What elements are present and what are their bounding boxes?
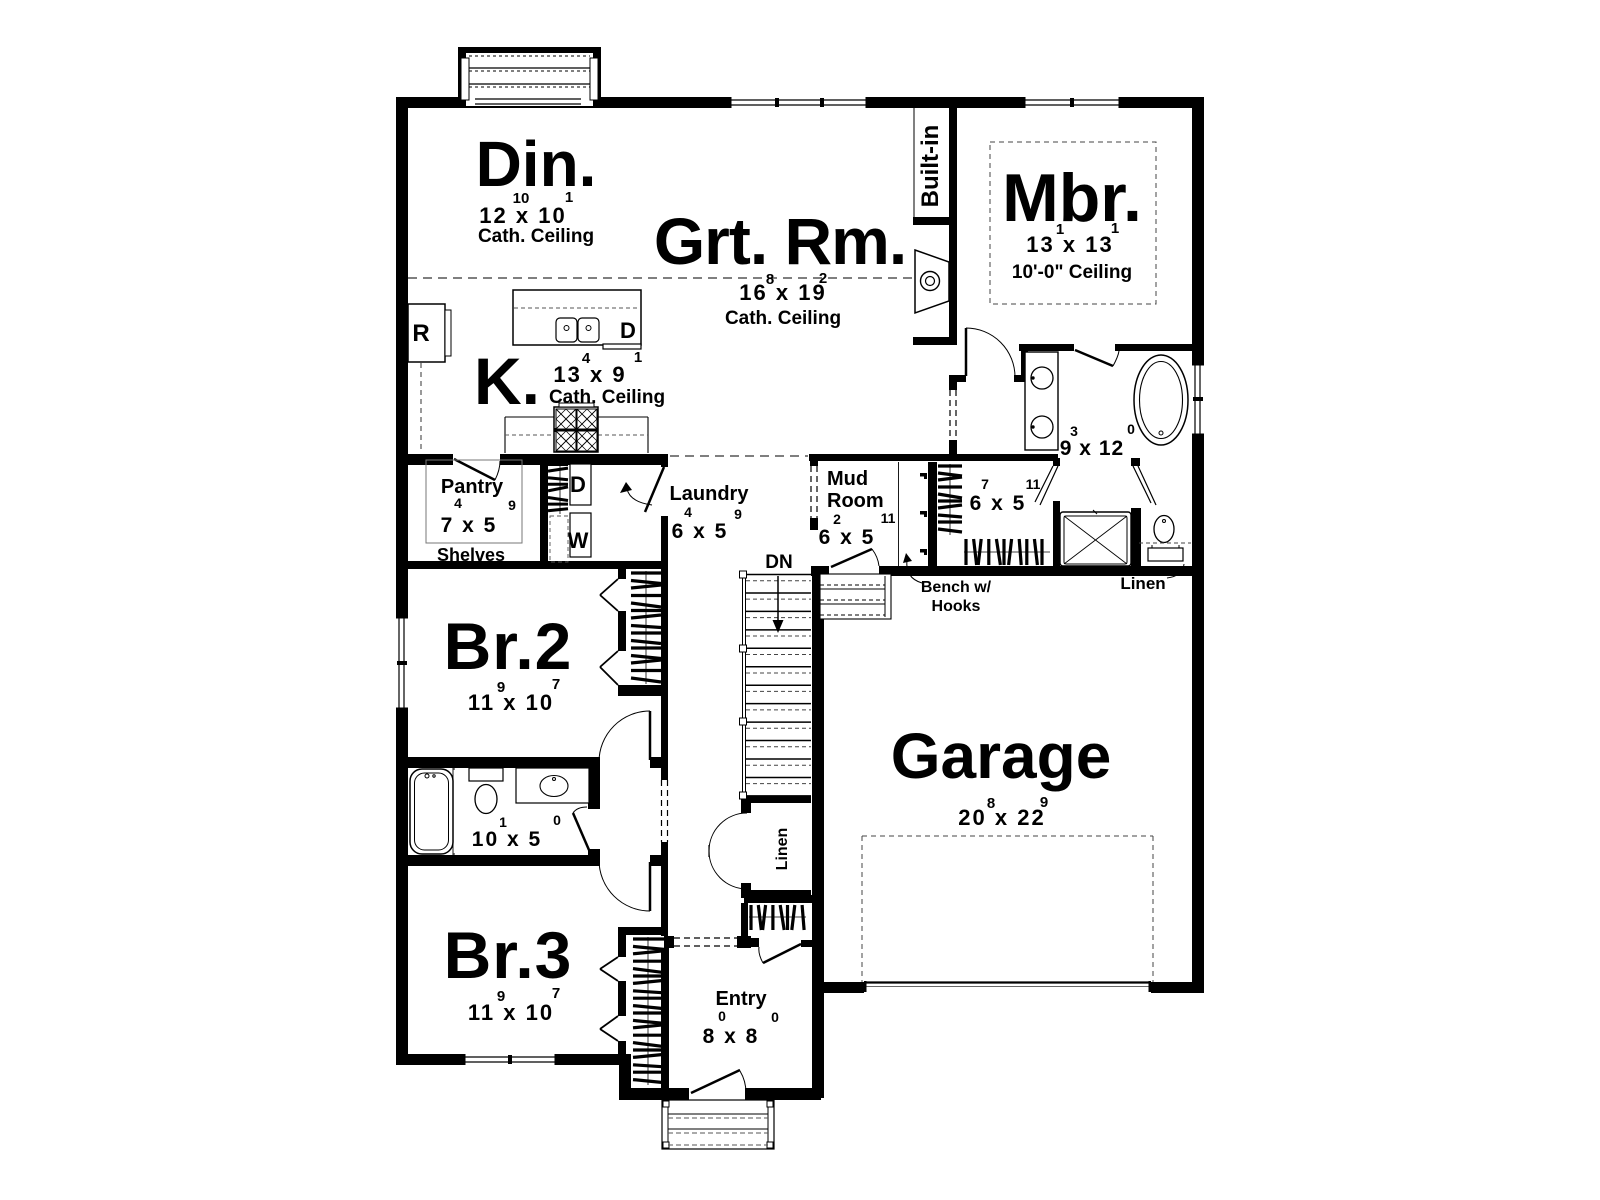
svg-text:6 x 5: 6 x 5 (819, 526, 876, 549)
svg-text:0: 0 (1127, 421, 1135, 437)
svg-text:20 x 22: 20 x 22 (958, 805, 1045, 830)
svg-text:8: 8 (766, 271, 774, 288)
svg-text:Grt. Rm.: Grt. Rm. (654, 204, 906, 278)
svg-text:9 x 12: 9 x 12 (1060, 437, 1124, 460)
svg-text:0: 0 (553, 812, 561, 828)
svg-text:0: 0 (718, 1008, 726, 1024)
svg-text:7: 7 (552, 676, 560, 693)
svg-text:D: D (620, 318, 636, 343)
svg-text:Br.2: Br.2 (444, 609, 573, 683)
svg-text:Garage: Garage (891, 720, 1112, 792)
svg-text:Pantry: Pantry (441, 476, 504, 498)
svg-text:Cath. Ceiling: Cath. Ceiling (549, 387, 665, 408)
svg-text:6 x 5: 6 x 5 (970, 492, 1027, 515)
svg-text:3: 3 (1070, 423, 1078, 439)
svg-text:Hooks: Hooks (932, 598, 981, 615)
svg-text:9: 9 (508, 497, 516, 513)
svg-text:2: 2 (833, 511, 841, 527)
svg-text:4: 4 (582, 350, 591, 367)
svg-text:13 x 13: 13 x 13 (1026, 232, 1113, 257)
svg-text:9: 9 (1040, 794, 1048, 811)
svg-text:0: 0 (771, 1009, 779, 1025)
svg-text:7 x 5: 7 x 5 (441, 514, 498, 537)
svg-text:K.: K. (474, 344, 540, 418)
svg-text:1: 1 (565, 189, 573, 206)
svg-text:Laundry: Laundry (670, 483, 750, 505)
svg-text:11: 11 (1026, 476, 1041, 492)
svg-text:1: 1 (1056, 221, 1064, 238)
svg-text:Cath. Ceiling: Cath. Ceiling (478, 226, 594, 247)
svg-text:R: R (412, 320, 429, 347)
svg-text:Built-in: Built-in (917, 125, 944, 208)
svg-text:7: 7 (552, 985, 560, 1002)
svg-text:9: 9 (497, 679, 505, 696)
svg-text:11: 11 (881, 510, 896, 526)
svg-text:Bench w/: Bench w/ (921, 579, 992, 596)
svg-text:1: 1 (1111, 220, 1119, 237)
svg-text:Entry: Entry (715, 988, 767, 1010)
svg-text:Room: Room (827, 490, 884, 512)
svg-text:10: 10 (513, 190, 530, 207)
svg-text:2: 2 (819, 270, 827, 287)
svg-text:10'-0" Ceiling: 10'-0" Ceiling (1012, 262, 1132, 283)
svg-text:Din.: Din. (476, 128, 597, 200)
svg-text:10 x 5: 10 x 5 (472, 828, 542, 851)
svg-text:DN: DN (765, 552, 792, 573)
svg-text:Shelves: Shelves (437, 545, 505, 565)
svg-text:4: 4 (684, 504, 692, 520)
svg-text:11 x 10: 11 x 10 (468, 1000, 554, 1025)
svg-text:1: 1 (499, 814, 507, 830)
svg-text:9: 9 (734, 506, 742, 522)
svg-text:Br.3: Br.3 (444, 918, 573, 992)
svg-text:D: D (570, 472, 586, 497)
svg-text:Cath. Ceiling: Cath. Ceiling (725, 308, 841, 329)
svg-text:Linen: Linen (774, 828, 791, 871)
svg-text:Linen: Linen (1120, 574, 1165, 593)
svg-text:16 x 19: 16 x 19 (739, 280, 826, 305)
svg-text:Mud: Mud (827, 468, 868, 490)
svg-text:7: 7 (981, 476, 989, 492)
svg-text:9: 9 (497, 988, 505, 1005)
svg-text:8 x 8: 8 x 8 (703, 1025, 760, 1048)
svg-text:W: W (568, 528, 589, 553)
svg-text:Mbr.: Mbr. (1002, 160, 1142, 236)
svg-text:8: 8 (987, 795, 995, 812)
svg-text:11 x 10: 11 x 10 (468, 690, 554, 715)
svg-text:6 x 5: 6 x 5 (672, 520, 729, 543)
svg-text:1: 1 (634, 349, 642, 366)
svg-text:4: 4 (454, 495, 462, 511)
